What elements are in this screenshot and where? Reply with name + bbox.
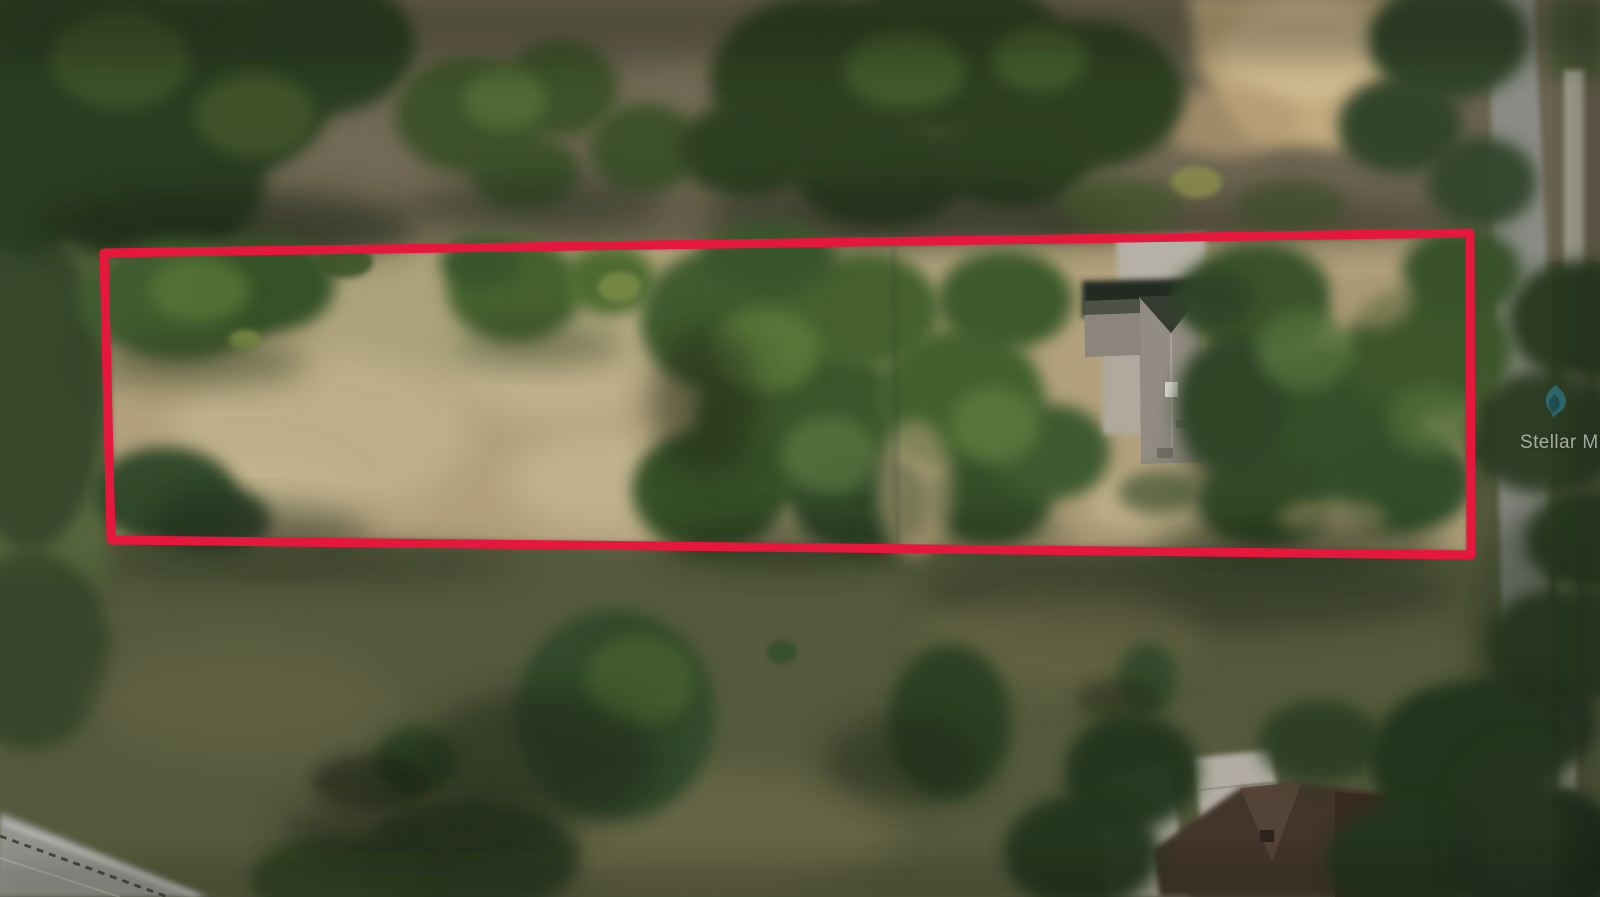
terrain-layer [0,0,1600,897]
lower-bush [767,640,797,664]
neighbor-trees-3 [1258,700,1382,784]
parcel-grove2-highlight [950,387,1040,463]
house-left-wing-shadow [1084,299,1140,315]
house-roof-vent-1 [1157,448,1173,458]
vignette-right [1572,0,1600,897]
parcel-grove-5 [702,222,838,294]
parcel-trees-mid-shadow [450,325,630,365]
parcel-grove-shadow-1 [650,325,760,475]
parcel-gap-tan [877,420,953,560]
vignette-top [0,0,1600,60]
neighbor-chimney [1260,830,1274,842]
vignette-bottom [0,862,1600,897]
scrub-bushes-1 [1060,177,1180,233]
trees-topright-3 [1427,137,1537,227]
parcel-trees-left-highlight [150,258,250,322]
lower-dry-patch-3 [90,640,390,760]
parcel-grove3-highlight-2 [1387,385,1477,455]
bottom-trees-shadow [280,795,560,865]
house-ac-unit [1165,382,1178,397]
parcel-grove2-2 [937,250,1073,350]
parcel-trees-left-shadow [90,338,310,386]
below-line-shadow-left [80,543,520,587]
parcel-trees-mid-accent [598,272,642,302]
scrub-bush-yellow [1170,166,1222,198]
tree-mass-topleft-highlight-2 [195,73,315,157]
tree-overhang-house [1170,268,1254,328]
aerial-photo-canvas [0,0,1600,897]
tree-mass-topmid-6 [678,102,818,198]
house-garden-patch [1118,470,1198,514]
parcel-grove3-highlight-1 [1257,310,1353,390]
parcel-grove-highlight-2 [782,417,878,493]
parcel-grove3-gap-1 [1332,272,1412,328]
parcel-grove3-6 [1402,227,1522,317]
lower-tree-mid-shadow [825,715,985,805]
trees-topcenter-highlight [463,70,547,130]
aerial-photo: Stellar MLS [0,0,1600,897]
trees-topcenter-shadow [410,179,670,231]
scrub-bushes-2 [1235,180,1345,230]
